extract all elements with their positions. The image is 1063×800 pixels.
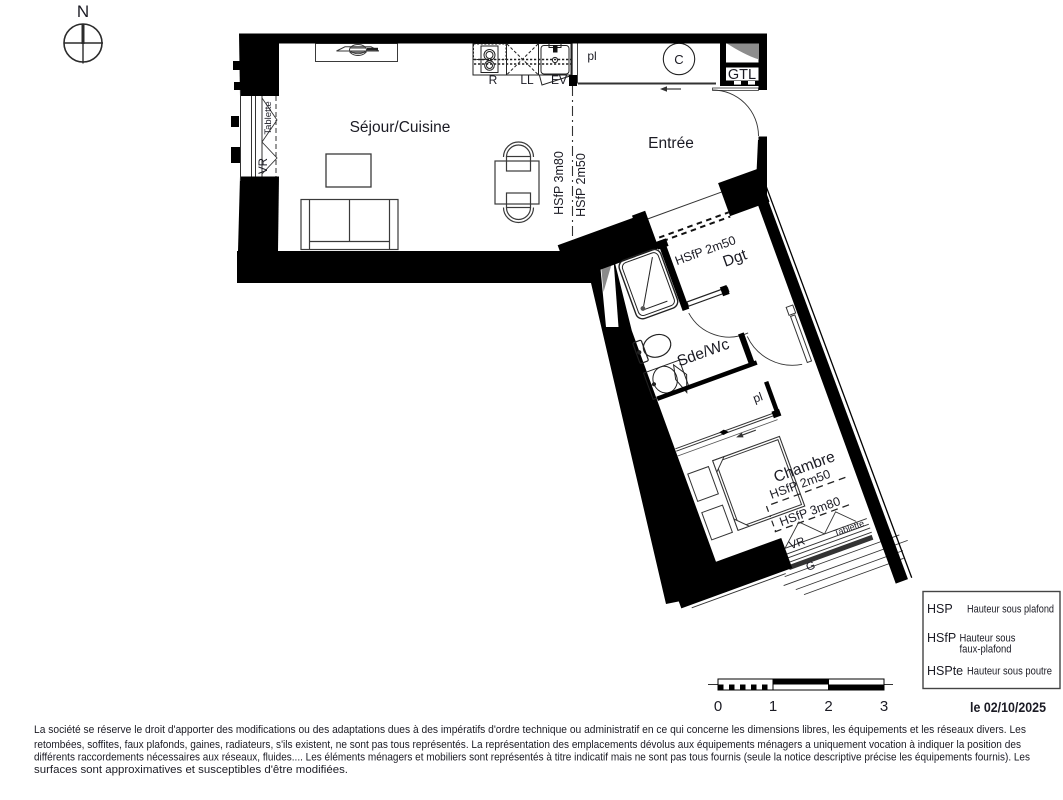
svg-text:faux-plafond: faux-plafond (960, 644, 1012, 656)
svg-text:GTL: GTL (728, 67, 756, 83)
svg-text:Tablette: Tablette (263, 101, 274, 134)
svg-text:3: 3 (880, 698, 888, 715)
svg-text:Entrée: Entrée (648, 135, 694, 152)
svg-text:1: 1 (769, 698, 777, 715)
svg-text:Hauteur sous plafond: Hauteur sous plafond (967, 604, 1054, 616)
svg-text:0: 0 (714, 698, 722, 715)
svg-text:Séjour/Cuisine: Séjour/Cuisine (350, 119, 451, 136)
svg-text:R: R (489, 73, 498, 87)
svg-text:HSfP 2m50: HSfP 2m50 (574, 153, 588, 217)
svg-text:2: 2 (824, 698, 832, 715)
svg-text:La société se réserve le droit: La société se réserve le droit d'apporte… (34, 724, 1026, 736)
svg-text:C: C (674, 52, 683, 67)
svg-text:retombées, soffites, faux plaf: retombées, soffites, faux plafonds, gain… (34, 739, 1021, 751)
svg-text:le 02/10/2025: le 02/10/2025 (970, 700, 1046, 715)
svg-text:différents raccordements néces: différents raccordements nécessaires aux… (34, 752, 1030, 764)
svg-text:VR: VR (258, 158, 270, 174)
svg-text:HSPte: HSPte (927, 664, 963, 678)
svg-text:HSfP 3m80: HSfP 3m80 (552, 151, 566, 215)
svg-text:EV: EV (551, 73, 567, 87)
svg-text:pl: pl (587, 49, 596, 63)
svg-text:Hauteur sous poutre: Hauteur sous poutre (967, 666, 1052, 678)
svg-text:HSP: HSP (927, 602, 953, 616)
svg-text:HSfP: HSfP (927, 631, 956, 645)
svg-text:surfaces sont approximatives e: surfaces sont approximatives et suscepti… (34, 764, 348, 776)
svg-text:N: N (77, 2, 89, 21)
svg-text:LL: LL (520, 73, 534, 87)
